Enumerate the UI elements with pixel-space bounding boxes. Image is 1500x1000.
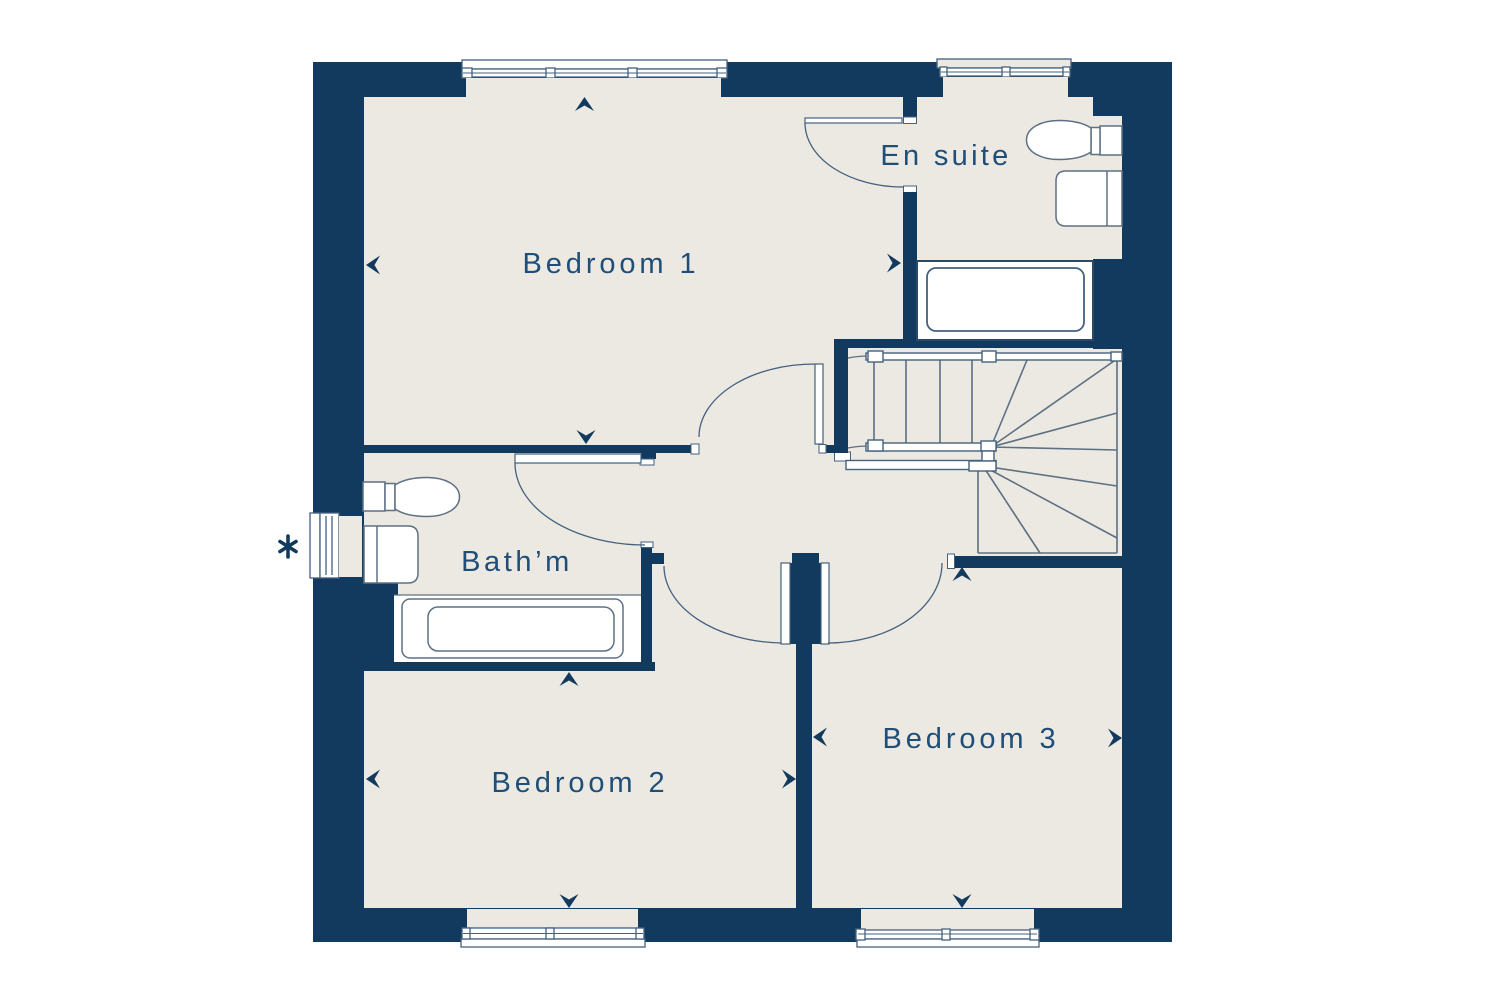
svg-text:Bath’m: Bath’m — [461, 546, 573, 578]
svg-text:En suite: En suite — [880, 140, 1011, 172]
svg-text:Bedroom 2: Bedroom 2 — [492, 767, 669, 799]
svg-text:Bedroom 1: Bedroom 1 — [523, 248, 700, 280]
svg-text:Bedroom 3: Bedroom 3 — [883, 723, 1060, 755]
